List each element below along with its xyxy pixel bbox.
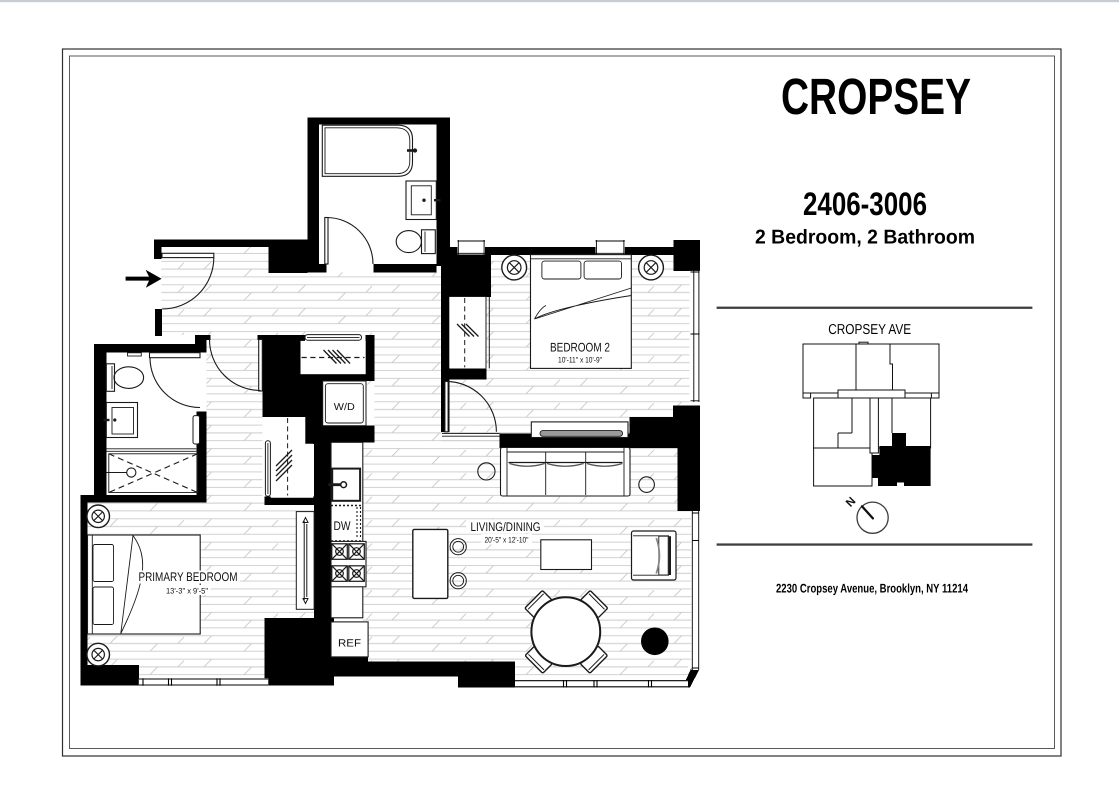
svg-text:LIVING/DINING: LIVING/DINING <box>471 520 541 534</box>
svg-text:CROPSEY AVE: CROPSEY AVE <box>828 322 911 338</box>
svg-text:DW: DW <box>334 519 351 533</box>
svg-text:2406-3006: 2406-3006 <box>803 186 927 222</box>
svg-text:10'-11" x 10'-9": 10'-11" x 10'-9" <box>558 356 602 365</box>
svg-text:2230 Cropsey Avenue, Brooklyn,: 2230 Cropsey Avenue, Brooklyn, NY 11214 <box>776 582 968 596</box>
svg-text:W/D: W/D <box>334 402 355 413</box>
svg-text:CROPSEY: CROPSEY <box>781 68 971 125</box>
svg-text:2 Bedroom, 2 Bathroom: 2 Bedroom, 2 Bathroom <box>755 227 975 249</box>
svg-text:13'-3" x 9'-5": 13'-3" x 9'-5" <box>166 587 208 596</box>
svg-text:20'-5" x 12'-10": 20'-5" x 12'-10" <box>485 536 529 545</box>
svg-text:PRIMARY BEDROOM: PRIMARY BEDROOM <box>139 570 238 584</box>
svg-text:BEDROOM 2: BEDROOM 2 <box>550 341 610 355</box>
svg-text:REF: REF <box>338 638 361 650</box>
